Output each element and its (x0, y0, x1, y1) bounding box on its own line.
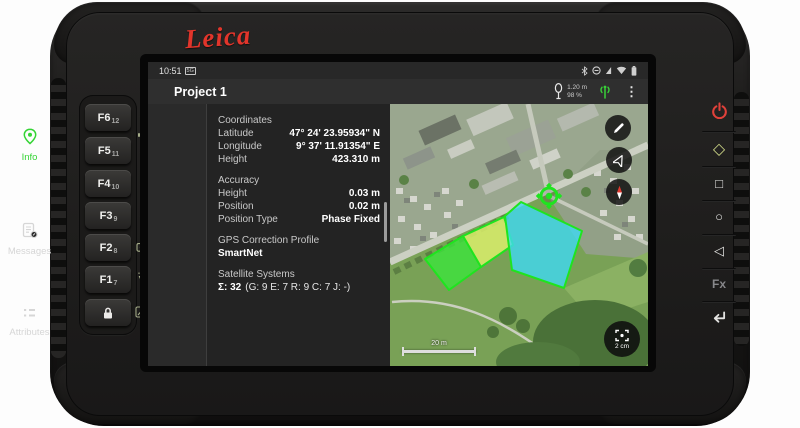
accuracy-position-value: 0.02 m (349, 200, 380, 213)
satellites-row: Σ: 32 (G: 9 E: 7 R: 9 C: 7 J: -) (218, 281, 380, 294)
key-sublabel: 7 (113, 280, 117, 287)
scale-bar (402, 350, 476, 353)
key-sublabel: 9 (113, 216, 117, 223)
key-sublabel: 12 (112, 118, 120, 125)
sim-signal-icon (605, 66, 612, 75)
app-bar: Project 1 1.20 m 98 % ⋮ (148, 79, 648, 104)
zoom-level-label: 2 cm (615, 343, 629, 350)
map-scale-button[interactable]: 2 cm (604, 321, 640, 357)
position-type-value: Phase Fixed (322, 213, 380, 226)
messages-icon (21, 222, 38, 239)
key-label: F4 (98, 178, 111, 190)
rtk-signal-icon[interactable] (597, 84, 613, 99)
power-icon (711, 102, 728, 119)
accuracy-height-row: Height0.03 m (218, 187, 380, 200)
tab-attributes[interactable]: Attributes (0, 306, 59, 338)
position-type-row: Position TypePhase Fixed (218, 213, 380, 226)
tab-info[interactable]: Info (0, 128, 59, 163)
position-pin-icon (22, 128, 38, 145)
gps-profile-heading: GPS Correction Profile (218, 234, 380, 247)
status-bar: 10:51 5G (148, 62, 648, 79)
satellites-sum: Σ: 32 (218, 281, 241, 294)
tab-label: Messages (0, 246, 59, 257)
accuracy-position-row: Position0.02 m (218, 200, 380, 213)
longitude-row: Longitude9° 37' 11.91354" E (218, 140, 380, 153)
attributes-list-icon (21, 306, 38, 320)
battery-icon (631, 66, 637, 76)
key-label: F3 (100, 210, 113, 222)
height-label: Height (218, 153, 247, 166)
button-ridge (702, 166, 736, 168)
button-ridge (702, 234, 736, 236)
left-tab-rail (148, 104, 207, 366)
key-f4[interactable]: F410 (85, 170, 131, 197)
position-type-label: Position Type (218, 213, 278, 226)
coordinates-heading: Coordinates (218, 114, 380, 127)
key-label: F2 (100, 242, 113, 254)
power-button[interactable] (704, 102, 734, 124)
pole-antenna-icon (553, 83, 564, 100)
button-ridge (702, 301, 736, 303)
key-label: F5 (98, 145, 111, 157)
enter-arrow-icon (711, 310, 727, 325)
latitude-row: Latitude47° 24' 23.95934" N (218, 127, 380, 140)
key-label: F6 (98, 112, 111, 124)
square-button[interactable]: □ (704, 176, 734, 191)
accuracy-position-label: Position (218, 200, 254, 213)
latitude-value: 47° 24' 23.95934" N (289, 127, 380, 140)
gps-profile-row: SmartNet (218, 247, 380, 260)
key-sublabel: 10 (112, 184, 120, 191)
clock: 10:51 (159, 66, 182, 76)
satellites-detail: (G: 9 E: 7 R: 9 C: 7 J: -) (245, 281, 350, 294)
button-ridge (702, 200, 736, 202)
wifi-icon (616, 66, 627, 75)
compass-button[interactable] (606, 179, 632, 205)
tab-label: Attributes (0, 327, 59, 338)
info-panel: Coordinates Latitude47° 24' 23.95934" N … (207, 104, 390, 366)
bluetooth-icon (581, 66, 588, 76)
key-sublabel: 8 (113, 248, 117, 255)
network-5g-icon: 5G (185, 67, 196, 75)
height-value: 423.310 m (332, 153, 380, 166)
longitude-label: Longitude (218, 140, 262, 153)
pencil-icon (612, 122, 625, 135)
satellites-heading: Satellite Systems (218, 268, 380, 281)
panel-scrollbar[interactable] (384, 202, 387, 242)
key-f1[interactable]: F17 (85, 266, 131, 293)
gps-profile-value: SmartNet (218, 247, 262, 260)
accuracy-height-label: Height (218, 187, 247, 200)
key-f2[interactable]: F28 (85, 234, 131, 261)
height-row: Height423.310 m (218, 153, 380, 166)
right-grip-ribs (734, 92, 749, 346)
project-title: Project 1 (174, 85, 553, 99)
ok-diamond-button[interactable]: ◇ (704, 139, 734, 159)
button-ridge (702, 268, 736, 270)
edit-button[interactable] (605, 115, 631, 141)
antenna-height-value: 1.20 m (567, 84, 587, 92)
button-ridge (702, 131, 736, 133)
back-triangle-button[interactable]: ◁ (704, 243, 734, 259)
key-f3[interactable]: F39 (85, 202, 131, 229)
compass-needle-icon (614, 185, 625, 200)
tab-messages[interactable]: Messages (0, 222, 59, 257)
padlock-icon (101, 306, 115, 320)
follow-position-button[interactable] (606, 147, 632, 173)
crosshair-icon (615, 329, 629, 342)
key-f6[interactable]: F612 (85, 104, 131, 131)
key-lock[interactable] (85, 299, 131, 326)
do-not-disturb-icon (592, 66, 601, 75)
antenna-status[interactable]: 1.20 m 98 % (553, 83, 587, 100)
navigation-arrow-icon (613, 154, 626, 167)
latitude-label: Latitude (218, 127, 254, 140)
longitude-value: 9° 37' 11.91354" E (296, 140, 380, 153)
accuracy-height-value: 0.03 m (349, 187, 380, 200)
device-photo: Leica F612 F511 F410 F39 F28 F17 ▲ ▼ ▲ ◐… (0, 0, 800, 428)
circle-button[interactable]: ○ (704, 209, 734, 224)
overflow-menu-icon[interactable]: ⋮ (625, 84, 638, 100)
key-sublabel: 11 (112, 151, 119, 158)
fx-button[interactable]: Fx (704, 277, 734, 291)
scale-bar-label: 20 m (402, 340, 476, 347)
tab-label: Info (0, 152, 59, 163)
enter-button[interactable] (704, 310, 734, 330)
key-label: F1 (100, 274, 113, 286)
key-f5[interactable]: F511 (85, 137, 131, 164)
battery-percent-value: 98 % (567, 92, 587, 100)
accuracy-heading: Accuracy (218, 174, 380, 187)
